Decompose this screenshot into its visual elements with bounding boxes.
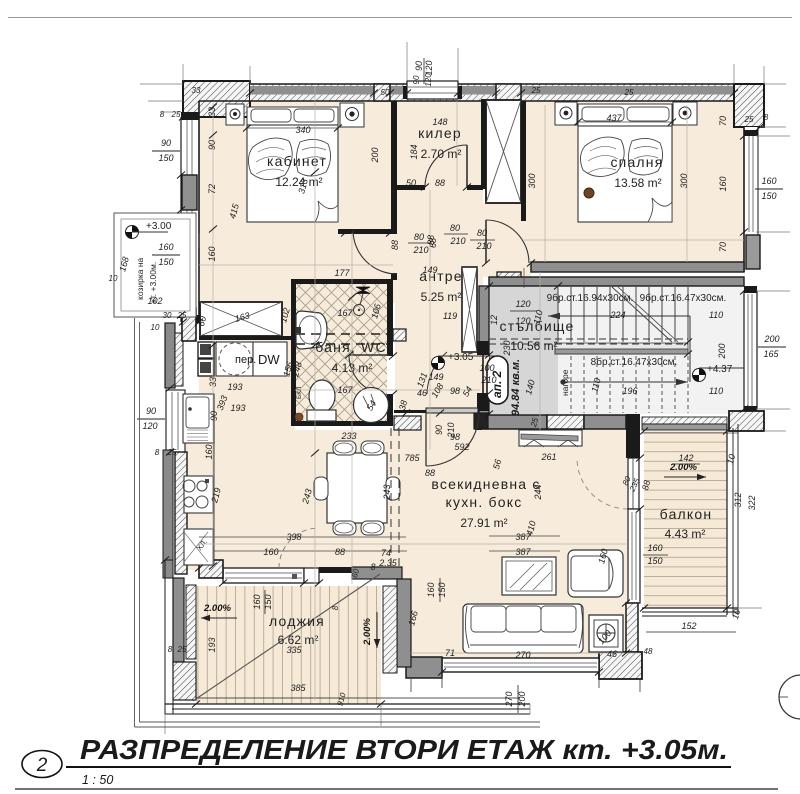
svg-text:10.56 m²: 10.56 m² — [510, 339, 557, 353]
svg-text:50: 50 — [406, 178, 416, 188]
svg-text:70: 70 — [718, 242, 728, 252]
svg-text:4.43 m²: 4.43 m² — [665, 527, 706, 541]
svg-text:244: 244 — [533, 484, 543, 500]
svg-text:88: 88 — [425, 468, 435, 478]
svg-text:385: 385 — [290, 683, 306, 693]
svg-text:25: 25 — [624, 88, 634, 97]
svg-text:270: 270 — [514, 650, 530, 660]
svg-text:200: 200 — [763, 334, 779, 344]
svg-text:160: 160 — [647, 543, 662, 553]
svg-text:кухн. бокс: кухн. бокс — [446, 494, 523, 510]
svg-text:150: 150 — [263, 594, 273, 609]
svg-text:30: 30 — [163, 311, 172, 320]
svg-text:25: 25 — [177, 645, 187, 654]
svg-text:33: 33 — [192, 86, 201, 95]
svg-text:200: 200 — [517, 691, 527, 707]
svg-text:398: 398 — [286, 532, 301, 542]
svg-text:785: 785 — [404, 453, 420, 463]
svg-text:142: 142 — [678, 453, 693, 463]
svg-text:102: 102 — [147, 296, 162, 306]
svg-text:224: 224 — [609, 310, 625, 320]
svg-text:100: 100 — [479, 363, 494, 373]
svg-text:200: 200 — [370, 147, 380, 163]
svg-text:322: 322 — [747, 495, 757, 510]
svg-text:200: 200 — [717, 343, 727, 359]
svg-text:25: 25 — [177, 311, 187, 320]
svg-text:DW: DW — [258, 352, 280, 367]
svg-text:340: 340 — [295, 125, 310, 135]
svg-text:27.91 m²: 27.91 m² — [460, 516, 507, 530]
svg-text:94.84 кв.м.: 94.84 кв.м. — [510, 359, 522, 416]
svg-text:119: 119 — [443, 311, 457, 321]
svg-text:387: 387 — [515, 532, 531, 542]
svg-text:98: 98 — [450, 386, 460, 396]
svg-text:210: 210 — [480, 375, 496, 385]
svg-text:25: 25 — [744, 115, 754, 124]
svg-text:8: 8 — [168, 645, 173, 654]
svg-text:80: 80 — [450, 223, 460, 233]
svg-text:149: 149 — [428, 372, 443, 382]
svg-text:88: 88 — [335, 547, 345, 557]
svg-text:243: 243 — [382, 484, 392, 500]
svg-text:177: 177 — [334, 268, 350, 278]
svg-text:48: 48 — [644, 647, 653, 656]
svg-text:160: 160 — [761, 176, 776, 186]
svg-text:74: 74 — [381, 548, 391, 558]
svg-text:592: 592 — [454, 442, 469, 452]
svg-text:+3.00: +3.00 — [146, 221, 172, 232]
svg-text:193: 193 — [227, 382, 242, 392]
svg-text:килер: килер — [418, 125, 462, 141]
svg-text:5.25 m²: 5.25 m² — [421, 290, 462, 304]
svg-text:+4.37: +4.37 — [707, 364, 733, 375]
svg-text:25: 25 — [167, 448, 177, 457]
svg-text:312: 312 — [733, 492, 743, 507]
svg-text:пер.: пер. — [235, 354, 256, 366]
svg-text:160: 160 — [252, 594, 262, 609]
svg-text:кабинет: кабинет — [267, 153, 327, 169]
svg-text:90: 90 — [146, 406, 156, 416]
svg-text:8: 8 — [160, 110, 165, 119]
svg-text:1 : 50: 1 : 50 — [82, 773, 113, 787]
svg-text:210: 210 — [412, 245, 428, 255]
svg-text:80: 80 — [414, 232, 424, 242]
svg-text:+3.05: +3.05 — [448, 352, 474, 363]
svg-text:150: 150 — [761, 191, 776, 201]
svg-text:нагоре: нагоре — [560, 369, 570, 396]
svg-text:8: 8 — [764, 113, 769, 122]
svg-text:БКЛ: БКЛ — [296, 387, 303, 399]
svg-text:71: 71 — [445, 648, 455, 658]
svg-text:спалня: спалня — [610, 154, 663, 170]
svg-text:90: 90 — [434, 425, 444, 435]
svg-text:25: 25 — [531, 86, 541, 95]
svg-text:437: 437 — [606, 113, 622, 123]
svg-text:110: 110 — [709, 386, 723, 396]
svg-text:70: 70 — [718, 116, 728, 126]
svg-text:120: 120 — [142, 421, 157, 431]
svg-text:46: 46 — [607, 649, 617, 659]
svg-text:8: 8 — [331, 605, 340, 610]
svg-text:88: 88 — [390, 240, 400, 250]
svg-text:2.70 m²: 2.70 m² — [421, 147, 462, 161]
svg-text:165: 165 — [763, 349, 779, 359]
svg-text:8: 8 — [370, 562, 375, 572]
svg-text:всекидневна с: всекидневна с — [431, 476, 540, 492]
svg-text:10: 10 — [109, 274, 118, 283]
svg-text:300: 300 — [527, 173, 537, 188]
svg-text:лоджия: лоджия — [269, 613, 325, 629]
svg-text:10: 10 — [151, 323, 160, 332]
svg-text:РАЗПРЕДЕЛЕНИЕ ВТОРИ ЕТАЖ кт. +: РАЗПРЕДЕЛЕНИЕ ВТОРИ ЕТАЖ кт. +3.05м. — [80, 734, 728, 765]
svg-text:150: 150 — [158, 257, 173, 267]
svg-text:150: 150 — [437, 582, 447, 597]
svg-text:козирка на: козирка на — [135, 257, 145, 300]
svg-text:90: 90 — [412, 75, 421, 84]
svg-text:8: 8 — [155, 448, 160, 457]
svg-text:167: 167 — [337, 308, 353, 318]
svg-text:46: 46 — [417, 388, 427, 398]
svg-text:160: 160 — [207, 246, 217, 261]
svg-text:150: 150 — [158, 153, 173, 163]
svg-text:33: 33 — [208, 377, 218, 387]
svg-text:210: 210 — [449, 236, 465, 246]
svg-text:300: 300 — [679, 173, 689, 188]
svg-text:90: 90 — [209, 411, 219, 421]
svg-text:110: 110 — [709, 310, 723, 320]
svg-text:230: 230 — [502, 340, 512, 356]
svg-text:270: 270 — [504, 691, 514, 707]
svg-text:90: 90 — [161, 138, 171, 148]
svg-text:13.58 m²: 13.58 m² — [614, 176, 661, 190]
svg-text:210: 210 — [475, 241, 491, 251]
svg-text:90: 90 — [207, 140, 217, 150]
svg-text:160: 160 — [718, 176, 728, 191]
svg-text:149: 149 — [422, 265, 437, 275]
svg-text:88: 88 — [435, 178, 445, 188]
svg-text:50: 50 — [381, 88, 390, 97]
svg-text:167: 167 — [337, 385, 353, 395]
svg-text:261: 261 — [540, 452, 556, 462]
svg-text:25: 25 — [171, 110, 181, 119]
svg-text:98: 98 — [450, 432, 460, 442]
svg-text:80: 80 — [477, 228, 487, 238]
svg-text:233: 233 — [340, 431, 356, 441]
svg-text:193: 193 — [207, 637, 217, 652]
svg-text:2.35: 2.35 — [378, 558, 398, 568]
svg-text:балкон: балкон — [660, 506, 713, 522]
svg-text:120: 120 — [424, 60, 434, 75]
svg-text:9бр.ст.16.94х30см.: 9бр.ст.16.94х30см. — [547, 292, 634, 304]
svg-text:8бр.ст.16.47х30см.: 8бр.ст.16.47х30см. — [591, 356, 678, 368]
svg-text:12: 12 — [489, 315, 499, 325]
svg-text:160: 160 — [158, 242, 173, 252]
svg-text:335: 335 — [286, 645, 302, 655]
svg-text:152: 152 — [681, 621, 696, 631]
svg-text:150: 150 — [647, 556, 662, 566]
svg-text:2.00%: 2.00% — [203, 603, 231, 614]
svg-text:9бр.ст.16.47х30см.: 9бр.ст.16.47х30см. — [640, 292, 727, 304]
svg-text:160: 160 — [263, 547, 278, 557]
svg-text:196: 196 — [622, 386, 637, 396]
svg-text:387: 387 — [515, 547, 531, 557]
svg-text:88: 88 — [426, 235, 436, 245]
svg-text:120: 120 — [515, 299, 530, 309]
svg-text:120: 120 — [515, 316, 530, 326]
svg-text:160: 160 — [426, 582, 436, 597]
svg-text:2: 2 — [36, 755, 48, 776]
svg-text:160: 160 — [204, 444, 214, 459]
svg-text:184: 184 — [409, 144, 419, 159]
svg-text:2.00%: 2.00% — [362, 618, 373, 646]
svg-text:72: 72 — [207, 184, 217, 194]
svg-text:148: 148 — [432, 117, 447, 127]
svg-text:120: 120 — [424, 73, 433, 87]
svg-text:90: 90 — [414, 61, 424, 71]
svg-text:193: 193 — [230, 403, 245, 413]
